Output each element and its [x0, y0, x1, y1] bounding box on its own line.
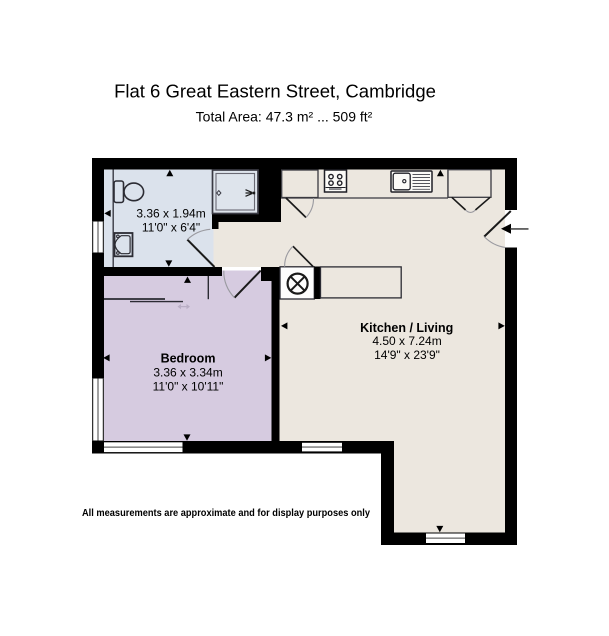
svg-text:4.50 x 7.24m: 4.50 x 7.24m — [372, 334, 441, 348]
svg-text:14'9" x 23'9": 14'9" x 23'9" — [374, 348, 440, 362]
svg-text:11'0" x 10'11": 11'0" x 10'11" — [153, 379, 224, 393]
svg-text:Bedroom: Bedroom — [161, 351, 216, 365]
svg-text:11'0" x 6'4": 11'0" x 6'4" — [142, 221, 200, 235]
svg-text:Total Area: 47.3 m² ... 509 ft: Total Area: 47.3 m² ... 509 ft² — [196, 109, 373, 125]
svg-text:Flat 6 Great Eastern Street, C: Flat 6 Great Eastern Street, Cambridge — [114, 81, 436, 102]
svg-text:3.36 x 3.34m: 3.36 x 3.34m — [153, 365, 222, 379]
svg-text:3.36 x 1.94m: 3.36 x 1.94m — [136, 206, 205, 220]
svg-text:Kitchen / Living: Kitchen / Living — [360, 321, 453, 335]
svg-text:All measurements are approxima: All measurements are approximate and for… — [82, 508, 370, 519]
